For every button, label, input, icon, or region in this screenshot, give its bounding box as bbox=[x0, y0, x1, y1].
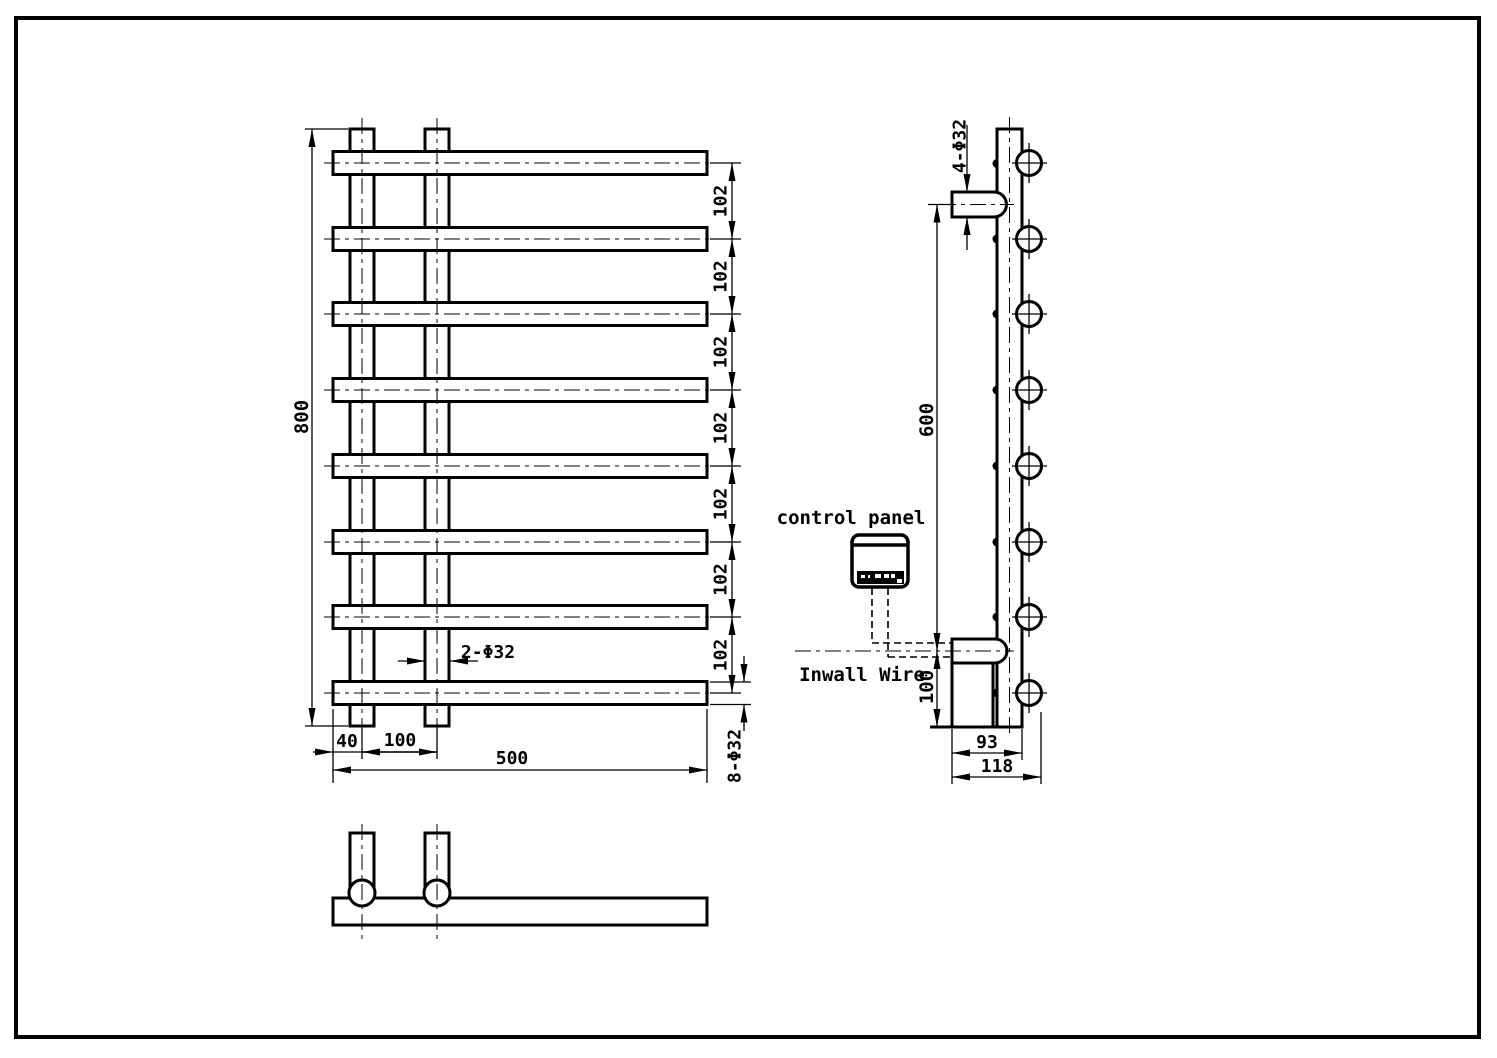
dim-118-label: 118 bbox=[981, 756, 1014, 777]
dim-600-label: 600 bbox=[916, 403, 938, 437]
technical-drawing: 800 102 102 102 102 102 102 102 bbox=[0, 0, 1497, 1058]
dim-102-label-5: 102 bbox=[711, 488, 732, 521]
dim-102-label-3: 102 bbox=[711, 336, 732, 369]
control-panel-label: control panel bbox=[777, 507, 926, 529]
bottom-view-bar bbox=[333, 898, 707, 925]
dim-40-label: 40 bbox=[336, 731, 358, 752]
inwall-wire-label: Inwall Wire bbox=[799, 664, 925, 686]
dim-93-label: 93 bbox=[976, 732, 998, 753]
dim-102-label-4: 102 bbox=[711, 412, 732, 445]
dim-post-dia-label: 2-Φ32 bbox=[461, 642, 515, 663]
dim-500-label: 500 bbox=[496, 748, 529, 769]
dim-102-label-2: 102 bbox=[711, 260, 732, 293]
dim-102-label-6: 102 bbox=[711, 563, 732, 596]
dim-102-label-7: 102 bbox=[711, 639, 732, 672]
sheet-border bbox=[16, 18, 1479, 1037]
dim-bar-dia-label: 8-Φ32 bbox=[725, 729, 746, 783]
junction-box bbox=[952, 663, 993, 727]
dim-800-label: 800 bbox=[291, 400, 313, 434]
dim-100-label: 100 bbox=[384, 730, 417, 751]
dim-bracket-dia-label: 4-Φ32 bbox=[950, 119, 971, 173]
dim-102-label-1: 102 bbox=[711, 185, 732, 218]
